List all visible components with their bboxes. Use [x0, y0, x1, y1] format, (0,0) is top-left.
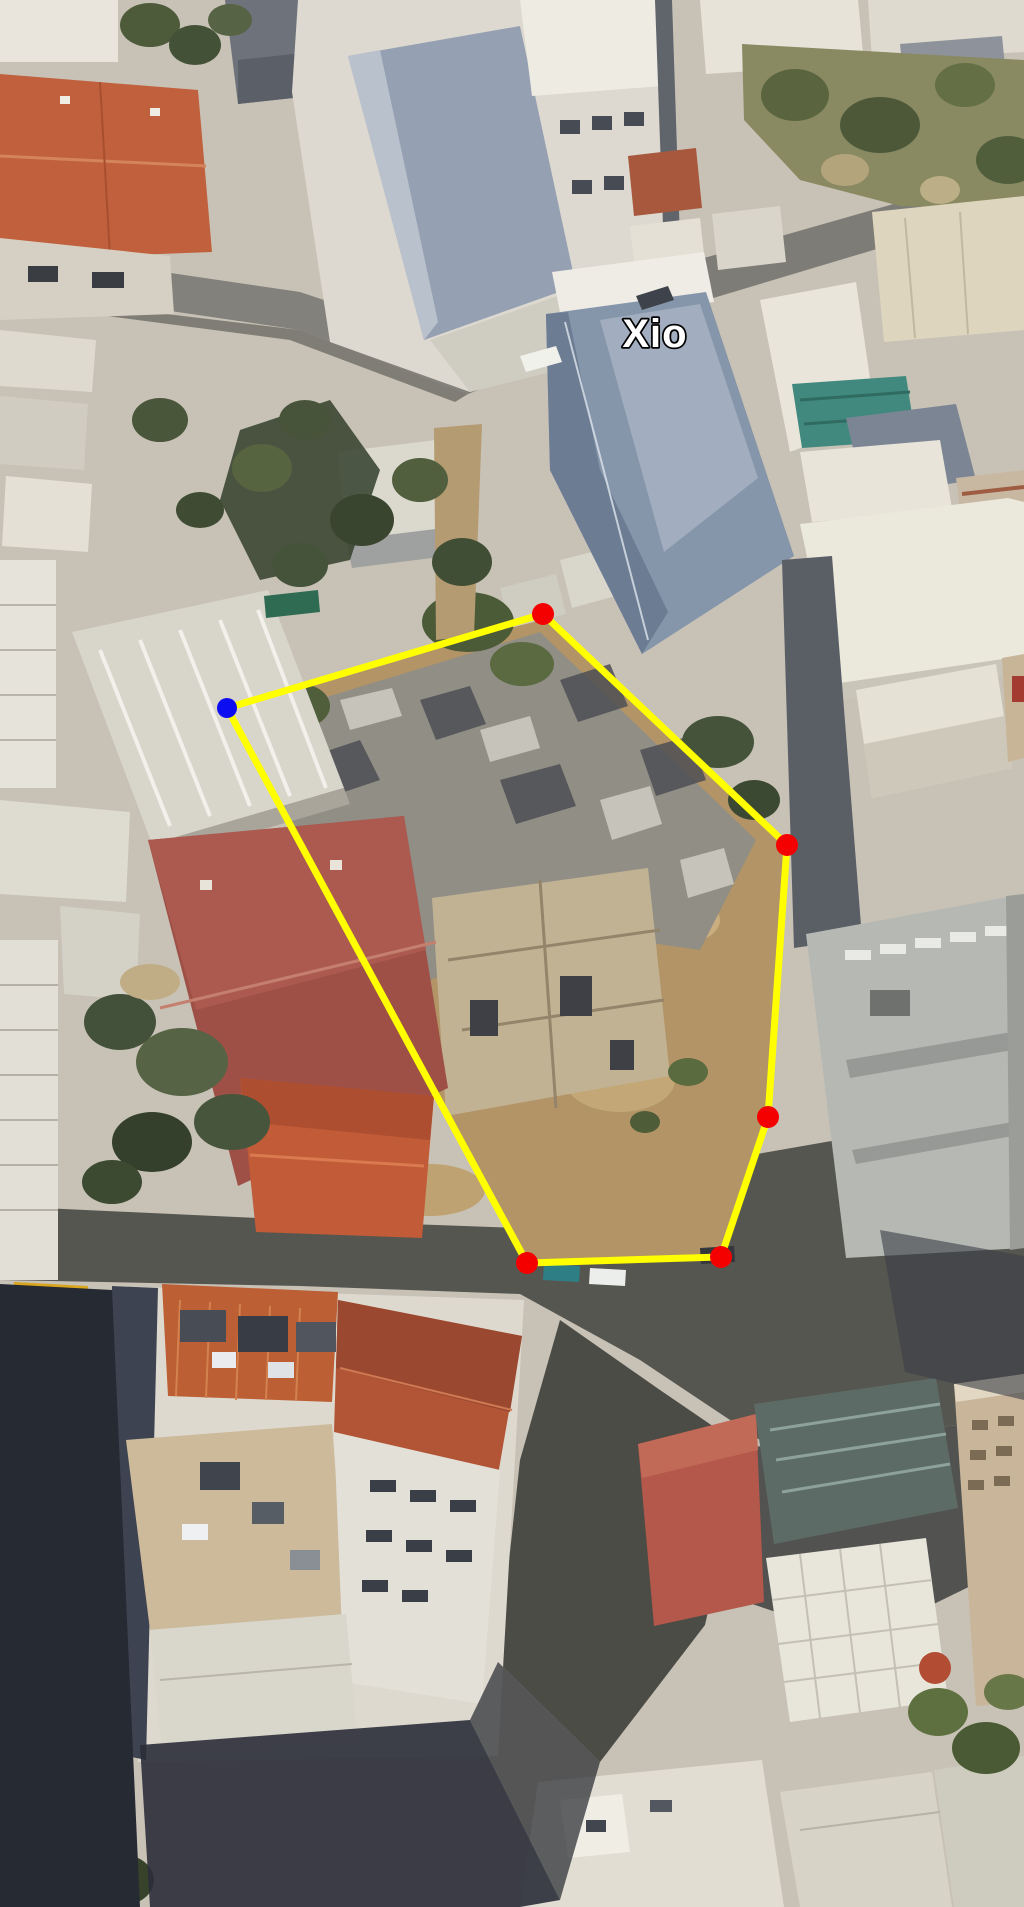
vertex-marker-blue-0[interactable] [217, 698, 237, 718]
place-label: Xio [622, 312, 687, 356]
vertex-marker-red-2[interactable] [776, 834, 798, 856]
parcel-boundary-line [227, 614, 787, 1263]
vertex-marker-red-4[interactable] [710, 1246, 732, 1268]
map-canvas[interactable]: Xio [0, 0, 1024, 1907]
measurement-overlay: Xio [0, 0, 1024, 1907]
vertex-marker-red-5[interactable] [516, 1252, 538, 1274]
vertex-marker-red-3[interactable] [757, 1106, 779, 1128]
vertex-marker-red-1[interactable] [532, 603, 554, 625]
